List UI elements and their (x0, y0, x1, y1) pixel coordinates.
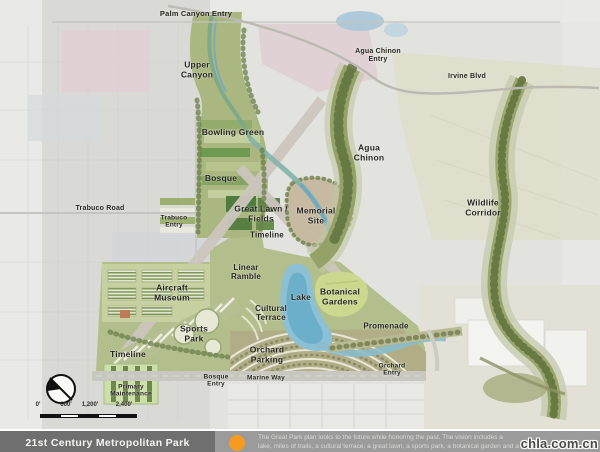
map-label-bosque-entry: Bosque Entry (203, 374, 228, 389)
map-label-cultural-terrace: Cultural Terrace (255, 305, 287, 323)
map-label-trabuco-road: Trabuco Road (75, 205, 124, 213)
map-label-timeline-southwest: Timeline (110, 350, 146, 360)
scale-bar: 0'600'1,200'2,400' (36, 402, 144, 424)
park-master-plan-map: Palm Canyon EntryUpper CanyonAgua Chinon… (0, 0, 600, 429)
map-label-agua-chinon: Agua Chinon (354, 143, 384, 162)
map-label-orchard-parking: Orchard Parking (250, 345, 284, 364)
map-label-trabuco-entry: Trabuco Entry (161, 215, 188, 230)
map-label-orchard-entry: Orchard Entry (379, 363, 406, 378)
scale-bar-segment (117, 414, 137, 418)
map-label-promenade: Promenade (363, 323, 408, 332)
watermark-chla: chla.com.cn (521, 436, 598, 451)
map-label-agua-chinon-entry: Agua Chinon Entry (355, 48, 401, 64)
caption-bullet-icon (229, 435, 245, 451)
map-label-bosque: Bosque (205, 174, 237, 184)
map-label-aircraft-museum: Aircraft Museum (154, 283, 190, 302)
scale-tick: 2,400' (116, 402, 132, 408)
scale-bar-segment (40, 414, 60, 418)
scale-bar-segment (98, 414, 117, 418)
scale-tick: 0' (36, 402, 41, 408)
scale-tick: 1,200' (82, 402, 98, 408)
map-label-timeline-central: Timeline (250, 232, 284, 241)
caption-footer: 21st Century Metropolitan Park The Great… (0, 429, 600, 452)
caption-bar: The Great Park plan looks to the future … (215, 431, 600, 452)
map-label-wildlife-corridor: Wildlife Corridor (465, 198, 501, 217)
map-label-linear-ramble: Linear Ramble (231, 264, 261, 282)
map-label-marine-way: Marine Way (247, 374, 285, 381)
scale-bar-segment (60, 414, 79, 418)
map-label-great-lawn-fields: Great Lawn / Fields (234, 204, 287, 223)
map-label-palm-canyon-entry: Palm Canyon Entry (160, 10, 232, 18)
map-label-primary-maintenance: Primary Maintenance (110, 384, 152, 399)
map-label-memorial-site: Memorial Site (297, 206, 336, 225)
plan-title-bar: 21st Century Metropolitan Park (0, 431, 215, 452)
map-label-bowling-green: Bowling Green (202, 128, 265, 138)
map-labels: Palm Canyon EntryUpper CanyonAgua Chinon… (0, 0, 600, 429)
map-label-irvine-blvd: Irvine Blvd (448, 73, 486, 81)
scale-tick: 600' (60, 402, 71, 408)
map-label-botanical-gardens: Botanical Gardens (320, 287, 360, 306)
map-label-lake: Lake (291, 293, 311, 303)
map-label-sports-park: Sports Park (180, 324, 208, 343)
great-park-plan-screenshot: Palm Canyon EntryUpper CanyonAgua Chinon… (0, 0, 600, 452)
map-label-upper-canyon: Upper Canyon (181, 60, 213, 79)
scale-bar-segment (79, 414, 98, 418)
plan-title: 21st Century Metropolitan Park (25, 437, 189, 449)
